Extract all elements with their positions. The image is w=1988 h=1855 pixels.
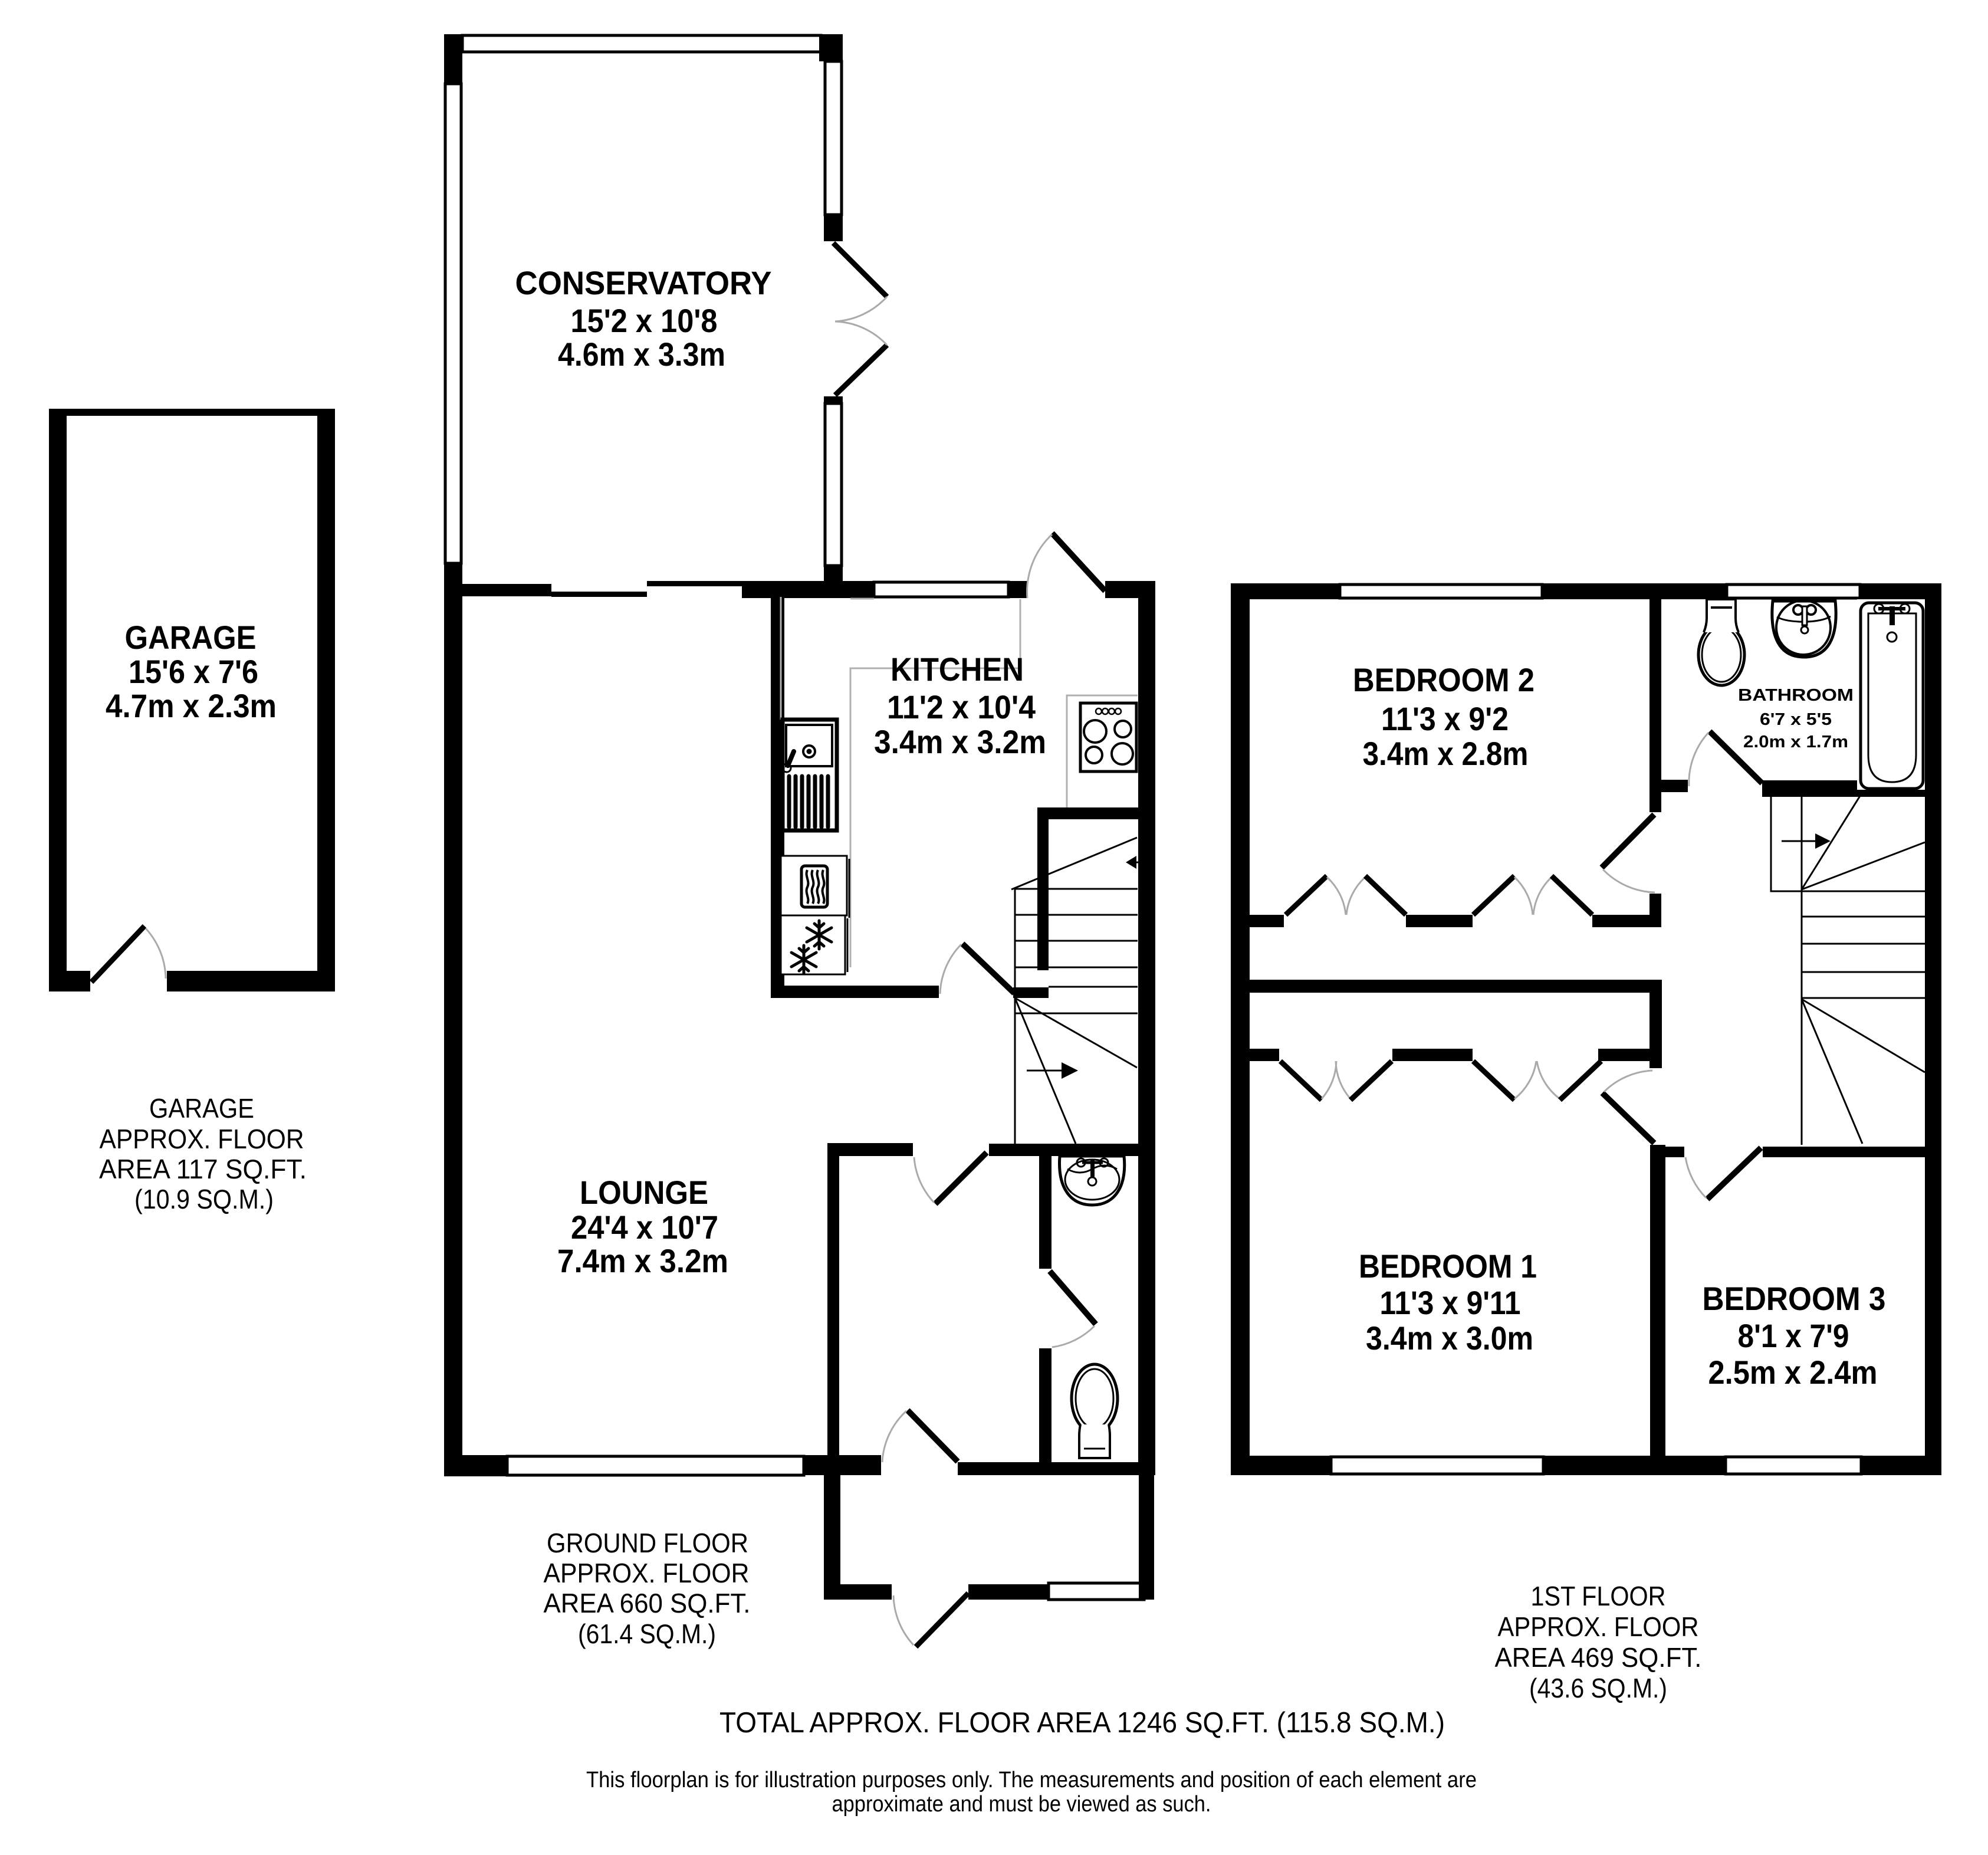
svg-text:(61.4 SQ.M.): (61.4 SQ.M.) — [578, 1618, 716, 1649]
svg-text:11'3 x 9'11: 11'3 x 9'11 — [1380, 1284, 1521, 1321]
svg-text:7.4m x 3.2m: 7.4m x 3.2m — [557, 1242, 728, 1279]
svg-text:2.0m x 1.7m: 2.0m x 1.7m — [1743, 733, 1848, 751]
svg-text:BEDROOM 3: BEDROOM 3 — [1703, 1280, 1886, 1317]
svg-text:1ST FLOOR: 1ST FLOOR — [1531, 1581, 1666, 1611]
svg-text:11'3 x 9'2: 11'3 x 9'2 — [1381, 700, 1509, 737]
svg-text:3.4m x 3.0m: 3.4m x 3.0m — [1366, 1319, 1533, 1357]
svg-text:AREA 117 SQ.FT.: AREA 117 SQ.FT. — [99, 1154, 307, 1184]
svg-text:6'7 x 5'5: 6'7 x 5'5 — [1760, 710, 1832, 729]
svg-text:2.5m x 2.4m: 2.5m x 2.4m — [1708, 1354, 1878, 1391]
svg-text:15'6 x 7'6: 15'6 x 7'6 — [129, 653, 258, 690]
svg-text:APPROX. FLOOR: APPROX. FLOOR — [1498, 1611, 1699, 1642]
svg-text:4.7m x 2.3m: 4.7m x 2.3m — [106, 687, 277, 724]
svg-text:4.6m x 3.3m: 4.6m x 3.3m — [558, 336, 725, 373]
svg-text:3.4m x 3.2m: 3.4m x 3.2m — [874, 723, 1046, 760]
svg-text:APPROX. FLOOR: APPROX. FLOOR — [100, 1124, 304, 1154]
svg-text:24'4 x 10'7: 24'4 x 10'7 — [571, 1209, 718, 1246]
svg-text:BEDROOM 2: BEDROOM 2 — [1353, 661, 1534, 698]
svg-text:GROUND FLOOR: GROUND FLOOR — [547, 1528, 748, 1558]
svg-text:AREA 469 SQ.FT.: AREA 469 SQ.FT. — [1495, 1642, 1702, 1673]
svg-text:BEDROOM 1: BEDROOM 1 — [1359, 1247, 1537, 1285]
svg-text:3.4m x 2.8m: 3.4m x 2.8m — [1363, 735, 1529, 772]
svg-text:LOUNGE: LOUNGE — [580, 1174, 708, 1211]
svg-text:BATHROOM: BATHROOM — [1738, 686, 1854, 705]
svg-text:This floorplan is for illustra: This floorplan is for illustration purpo… — [586, 1768, 1477, 1792]
svg-text:(43.6 SQ.M.): (43.6 SQ.M.) — [1529, 1673, 1667, 1703]
svg-text:GARAGE: GARAGE — [149, 1093, 254, 1124]
svg-text:8'1 x 7'9: 8'1 x 7'9 — [1738, 1317, 1849, 1354]
svg-text:AREA 660 SQ.FT.: AREA 660 SQ.FT. — [544, 1588, 751, 1618]
svg-text:TOTAL APPROX. FLOOR AREA 1246: TOTAL APPROX. FLOOR AREA 1246 SQ.FT. (11… — [719, 1707, 1445, 1739]
svg-text:CONSERVATORY: CONSERVATORY — [515, 264, 772, 301]
svg-text:KITCHEN: KITCHEN — [891, 651, 1024, 688]
svg-text:APPROX. FLOOR: APPROX. FLOOR — [544, 1558, 750, 1588]
svg-text:11'2 x 10'4: 11'2 x 10'4 — [887, 688, 1036, 725]
svg-text:15'2 x 10'8: 15'2 x 10'8 — [571, 302, 718, 339]
svg-text:GARAGE: GARAGE — [125, 619, 257, 656]
svg-text:(10.9 SQ.M.): (10.9 SQ.M.) — [134, 1184, 274, 1214]
svg-text:approximate and must be viewed: approximate and must be viewed as such. — [832, 1792, 1211, 1817]
